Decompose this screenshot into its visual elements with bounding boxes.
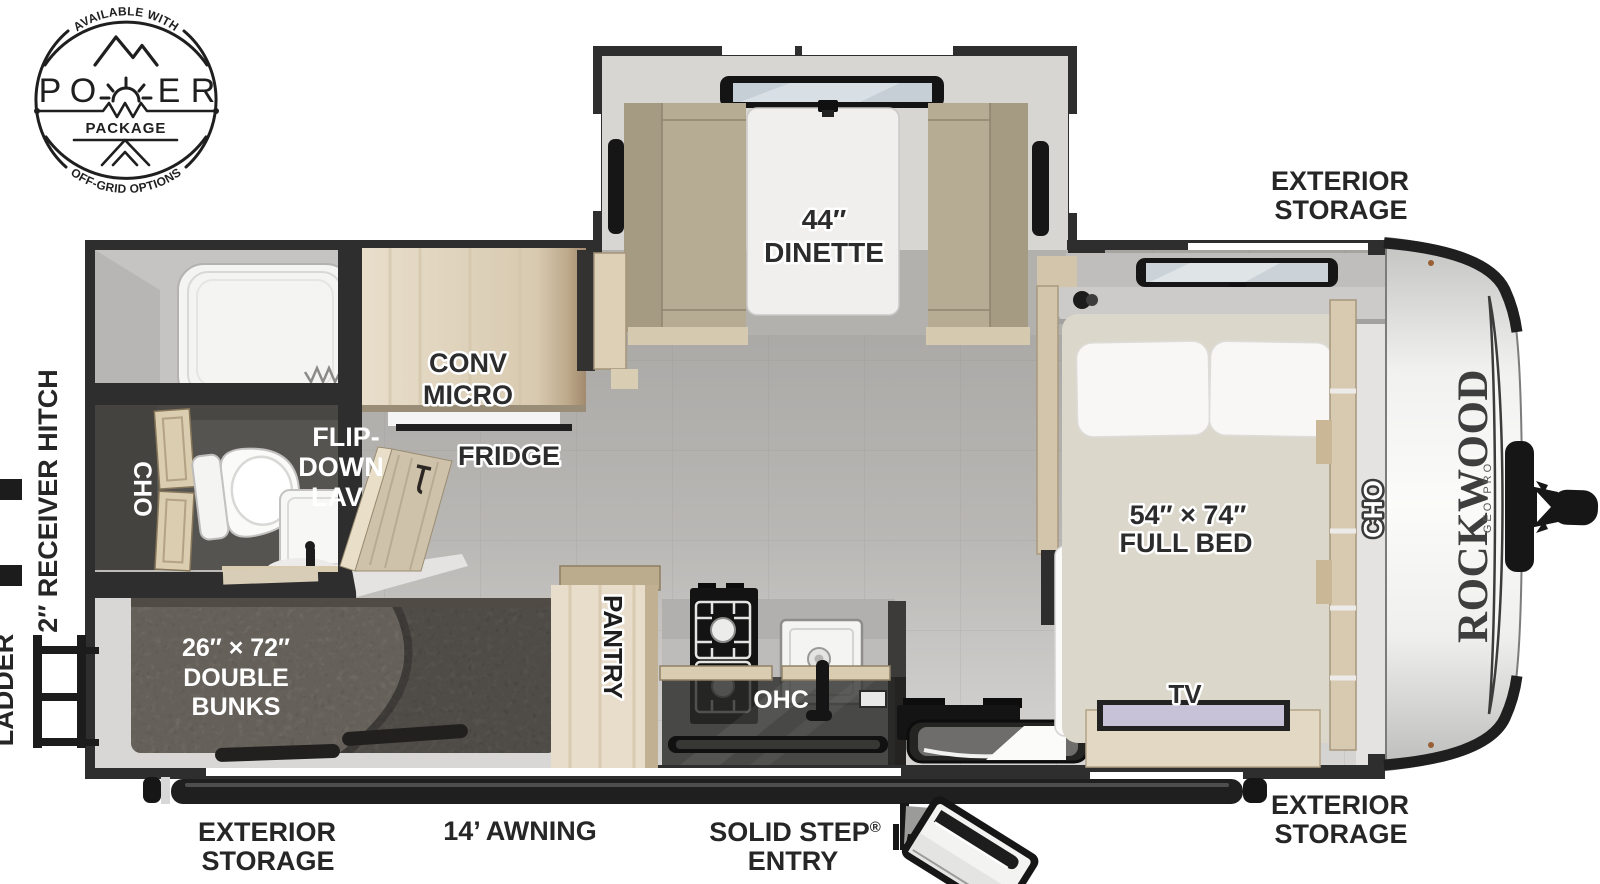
svg-text:EXTERIOR: EXTERIOR [1271, 166, 1409, 196]
svg-text:STORAGE: STORAGE [1274, 195, 1407, 225]
svg-text:LAV: LAV [311, 482, 363, 512]
svg-text:OHC: OHC [753, 686, 809, 714]
svg-text:CONV: CONV [429, 348, 507, 378]
svg-text:STORAGE: STORAGE [1274, 819, 1407, 849]
svg-text:PACKAGE: PACKAGE [86, 120, 167, 137]
svg-text:2″ RECEIVER HITCH: 2″ RECEIVER HITCH [33, 369, 63, 632]
svg-text:BUNKS: BUNKS [192, 693, 281, 721]
svg-text:ENTRY: ENTRY [748, 846, 839, 876]
svg-text:DOWN: DOWN [298, 452, 383, 482]
svg-text:FRIDGE: FRIDGE [458, 441, 560, 471]
svg-text:CHO: CHO [128, 461, 156, 517]
svg-text:DOUBLE: DOUBLE [183, 664, 289, 692]
svg-text:26″ × 72″: 26″ × 72″ [182, 634, 290, 662]
svg-text:STORAGE: STORAGE [201, 846, 334, 876]
svg-text:P: P [39, 72, 62, 110]
svg-text:14’ AWNING: 14’ AWNING [443, 816, 597, 846]
svg-text:O: O [70, 72, 96, 110]
svg-text:FULL BED: FULL BED [1120, 528, 1253, 558]
svg-text:R: R [191, 72, 216, 110]
svg-text:SOLID STEP®: SOLID STEP® [709, 817, 881, 847]
svg-text:DINETTE: DINETTE [764, 237, 884, 268]
svg-text:54″ × 74″: 54″ × 74″ [1130, 500, 1247, 530]
svg-text:E: E [158, 72, 181, 110]
svg-text:LADDER: LADDER [0, 634, 19, 747]
svg-text:EXTERIOR: EXTERIOR [1271, 790, 1409, 820]
svg-text:44″: 44″ [802, 204, 847, 235]
svg-text:EXTERIOR: EXTERIOR [198, 817, 336, 847]
svg-text:FLIP-: FLIP- [312, 422, 380, 452]
svg-text:PANTRY: PANTRY [598, 595, 628, 699]
svg-text:TV: TV [1168, 679, 1202, 709]
svg-text:CHO: CHO [1358, 480, 1388, 538]
svg-text:GEO PRO: GEO PRO [1482, 461, 1494, 533]
svg-text:MICRO: MICRO [423, 380, 513, 410]
